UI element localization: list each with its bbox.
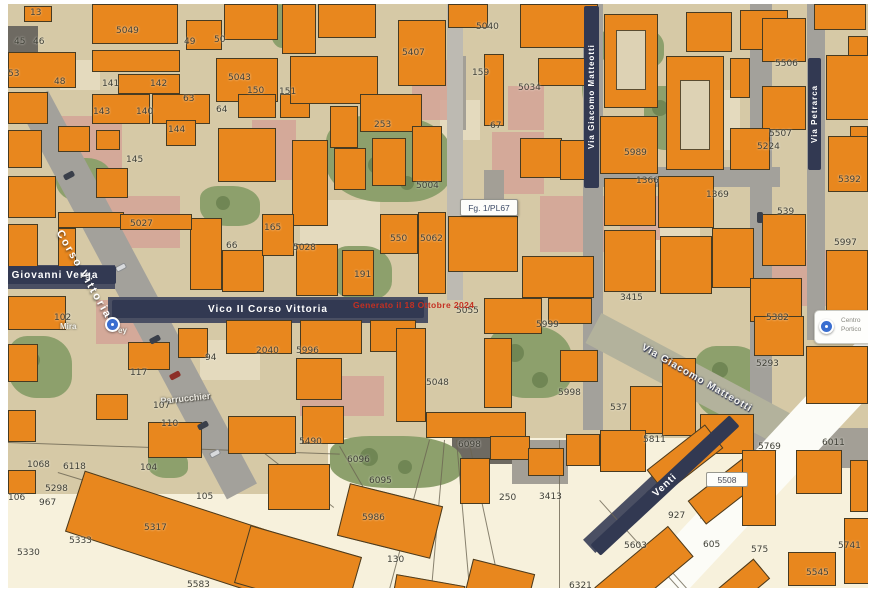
parcel-number-label: 550 [390, 235, 407, 244]
sheet-reference-text: Fg. 1/PL67 [468, 203, 510, 213]
cadastral-building [58, 126, 90, 152]
parcel-number-label: 5049 [116, 27, 139, 36]
cadastral-building [268, 464, 330, 510]
cadastral-building [566, 434, 600, 466]
parcel-number-label: 575 [751, 546, 768, 555]
parcel-number-label: 110 [161, 420, 178, 429]
cadastral-building [660, 236, 712, 294]
map-viewport[interactable]: Giovanni VergaVico II Corso VittoriaVia … [8, 4, 868, 588]
cadastral-building [218, 128, 276, 182]
cadastral-building [762, 86, 806, 130]
parcel-number-label: 5506 [775, 60, 798, 69]
parcel-number-label: 5028 [293, 244, 316, 253]
cadastral-building [658, 176, 714, 228]
parcel-number-label: 5996 [296, 347, 319, 356]
parcel-number-label: 5999 [536, 321, 559, 330]
parcel-number-label: 53 [8, 70, 19, 79]
cadastral-building [337, 483, 443, 559]
cadastral-building [412, 126, 442, 182]
parcel-number-label: 5989 [624, 149, 647, 158]
frame-right [868, 0, 878, 606]
parcel-number-label: 6098 [458, 441, 481, 450]
cadastral-building [396, 328, 426, 422]
sheet-reference-callout: Fg. 1/PL67 [460, 199, 518, 216]
cadastral-building [372, 138, 406, 186]
cadastral-building [528, 448, 564, 476]
cadastral-building [762, 18, 806, 62]
cadastral-building [8, 92, 48, 124]
cadastral-building [604, 230, 656, 292]
parcel-number-label: 5293 [756, 360, 779, 369]
parcel-number-label: 5490 [299, 438, 322, 447]
frame-top [0, 0, 878, 4]
parcel-number-label: 159 [472, 69, 489, 78]
tree-icon [216, 196, 230, 210]
cadastral-building [448, 216, 518, 272]
cadastral-building [8, 130, 42, 168]
cadastral-building [393, 574, 466, 588]
parcel-number-label: 143 [93, 108, 110, 117]
cadastral-building [844, 518, 868, 584]
cadastral-building [762, 214, 806, 266]
parcel-number-label: 150 [247, 87, 264, 96]
parcel-number-label: 5583 [187, 581, 210, 588]
tree-icon [398, 460, 412, 474]
cadastral-building [850, 460, 868, 512]
parcel-number-label: 5392 [838, 176, 861, 185]
parcel-number-label: 605 [703, 541, 720, 550]
parcel-number-label: 191 [354, 271, 371, 280]
cadastral-building [296, 358, 342, 400]
parcel-number-label: 5048 [426, 379, 449, 388]
parcel-number-label: 5004 [416, 182, 439, 191]
cadastral-building [118, 74, 180, 94]
street-label: Mira [60, 322, 76, 331]
parcel-number-label: 6095 [369, 477, 392, 486]
parcel-number-label: 6118 [63, 463, 86, 472]
cadastral-building [96, 130, 120, 150]
parcel-number-label: 5545 [806, 569, 829, 578]
parcel-number-label: 5043 [228, 74, 251, 83]
cadastral-building [490, 436, 530, 460]
parcel-number-label: 5027 [130, 220, 153, 229]
cadastral-building [742, 450, 776, 526]
parcel-number-label: 151 [279, 88, 296, 97]
parcel-number-label: 102 [54, 314, 71, 323]
parcel-number-label: 130 [387, 556, 404, 565]
parcel-number-label: 5062 [420, 235, 443, 244]
parcel-number-label: 5382 [766, 314, 789, 323]
road-segment [807, 4, 825, 340]
cadastral-building [282, 4, 316, 54]
parcel-number-label: 45 [14, 38, 25, 47]
cadastral-building [418, 212, 446, 294]
parcel-number-label: 5769 [758, 443, 781, 452]
parcel-number-label: 5034 [518, 84, 541, 93]
parcel-number-label: 46 [33, 38, 44, 47]
cadastral-building [224, 4, 278, 40]
cadastral-building [600, 430, 646, 472]
cadastral-building [730, 58, 750, 98]
cadastral-building [8, 470, 36, 494]
cadastral-map-screenshot: Giovanni VergaVico II Corso VittoriaVia … [0, 0, 878, 606]
parcel-number-label: 13 [30, 9, 41, 18]
parcel-number-label: 1068 [27, 461, 50, 470]
parcel-number-label: 5224 [757, 143, 780, 152]
frame-left [0, 0, 8, 606]
parcel-number-label: 142 [150, 80, 167, 89]
street-name-band: Giovanni Verga [8, 266, 116, 284]
cadastral-building [178, 328, 208, 358]
cadastral-building [426, 412, 526, 438]
parcel-number-label: 5040 [476, 23, 499, 32]
tree-icon [532, 372, 548, 388]
parcel-number-label: 927 [668, 512, 685, 521]
parcel-number-label: 48 [54, 78, 65, 87]
parcel-number-label: 539 [777, 208, 794, 217]
parcel-number-label: 105 [196, 493, 213, 502]
cadastral-building [484, 54, 504, 126]
parcel-number-label: 6011 [822, 439, 845, 448]
parcel-number-label: 50 [214, 36, 225, 45]
parcel-number-label: 5986 [362, 514, 385, 523]
cadastral-building [484, 298, 542, 334]
cadastral-building [222, 250, 264, 292]
parcel-callout-5508: 5508 [706, 472, 748, 487]
courtyard [680, 80, 710, 150]
parcel-number-label: 5333 [69, 537, 92, 546]
cadastral-building [520, 138, 562, 178]
parcel-number-label: 165 [264, 224, 281, 233]
parcel-number-label: 104 [140, 464, 157, 473]
cadastral-building [292, 140, 328, 226]
street-poi-icon[interactable] [105, 317, 120, 332]
parcel-number-label: 144 [168, 126, 185, 135]
cadastral-building [522, 256, 594, 298]
car-icon [757, 212, 763, 223]
parcel-number-label: 94 [205, 354, 216, 363]
cadastral-building [465, 559, 535, 588]
parcel-number-label: 5741 [838, 542, 861, 551]
parcel-number-label: 5317 [144, 524, 167, 533]
cadastral-building [334, 148, 366, 190]
parcel-number-label: 5811 [643, 436, 666, 445]
parcel-number-label: 106 [8, 494, 25, 503]
cadastral-building [600, 116, 658, 174]
cadastral-building [92, 50, 180, 72]
cadastral-building [8, 344, 38, 382]
cadastral-building [262, 214, 294, 256]
parcel-number-label: 3415 [620, 294, 643, 303]
parcel-number-label: 145 [126, 156, 143, 165]
cadastral-building [8, 224, 38, 268]
cadastral-building [228, 416, 296, 454]
cadastral-building [318, 4, 376, 38]
parcel-number-label: 5507 [769, 130, 792, 139]
cadastral-building [58, 212, 124, 228]
generation-date-watermark: Generato il 18 Ottobre 2024 [353, 300, 474, 310]
parcel-number-label: 537 [610, 404, 627, 413]
parcel-number-label: 49 [184, 38, 195, 47]
cadastral-building [8, 176, 56, 218]
poi-card-icon[interactable] [819, 319, 834, 334]
parcel-number-label: 66 [226, 242, 237, 251]
cadastral-building [190, 218, 222, 290]
parcel-number-label: 1366 [636, 177, 659, 186]
parcel-number-label: 1369 [706, 191, 729, 200]
parcel-callout-text: 5508 [718, 475, 737, 485]
parcel-number-label: 64 [216, 106, 227, 115]
parcel-number-label: 5298 [45, 485, 68, 494]
parcel-number-label: 967 [39, 499, 56, 508]
parcel-number-label: 3413 [539, 493, 562, 502]
cadastral-building [128, 342, 170, 370]
parcel-number-label: 140 [136, 108, 153, 117]
parcel-number-label: 5997 [834, 239, 857, 248]
cadastral-building [8, 410, 36, 442]
cadastral-building [796, 450, 842, 494]
cadastral-building [460, 458, 490, 504]
parcel-number-label: 5603 [624, 542, 647, 551]
cadastral-building [92, 4, 178, 44]
parcel-number-label: 2040 [256, 347, 279, 356]
poi-card-text: Centro Portico [841, 317, 861, 333]
parcel-number-label: 117 [130, 369, 147, 378]
cadastral-building [96, 168, 128, 198]
parcel-number-label: 6096 [347, 456, 370, 465]
street-name-band: Via Petrarca [808, 58, 821, 170]
parcel-number-label: 67 [490, 122, 501, 131]
cadastral-building [238, 94, 276, 118]
cadastral-building [712, 228, 754, 288]
cadastral-building [826, 55, 868, 120]
parcel-number-label: 253 [374, 121, 391, 130]
cadastral-building [330, 106, 358, 148]
parcel-number-label: 141 [102, 80, 119, 89]
parcel-number-label: 5330 [17, 549, 40, 558]
parcel-number-label: 250 [499, 494, 516, 503]
cadastral-building [686, 12, 732, 52]
courtyard [616, 30, 646, 90]
parcel-number-label: 5998 [558, 389, 581, 398]
cadastral-building [814, 4, 866, 30]
cadastral-building [96, 394, 128, 420]
parcel-number-label: 5407 [402, 49, 425, 58]
cadastral-building [560, 350, 598, 382]
cadastral-building [806, 346, 868, 404]
poi-card[interactable]: Centro Portico [814, 310, 868, 344]
cadastral-building [484, 338, 512, 408]
parcel-number-label: 107 [153, 402, 170, 411]
parcel-number-label: 63 [183, 95, 194, 104]
street-name-band: Via Giacomo Matteotti [584, 6, 599, 188]
frame-bottom [0, 588, 878, 606]
